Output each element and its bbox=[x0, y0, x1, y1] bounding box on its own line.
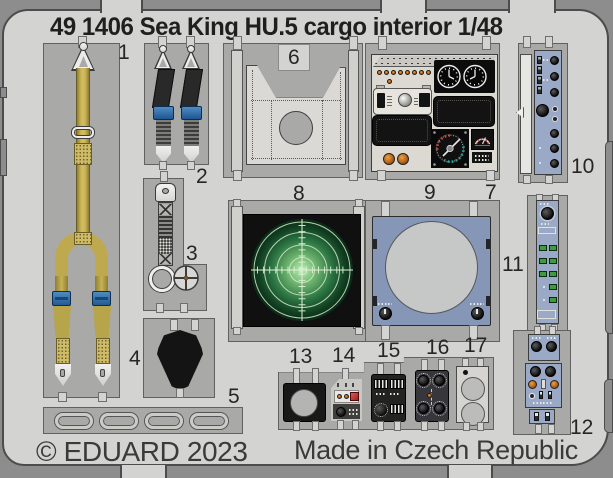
control-box bbox=[529, 409, 555, 424]
part-number-label: 11 bbox=[502, 254, 524, 275]
etch-detail bbox=[349, 36, 358, 50]
indicator-light-icon bbox=[398, 70, 403, 75]
etch-detail bbox=[394, 421, 401, 431]
etch-detail bbox=[523, 36, 531, 48]
box-knob-icon bbox=[545, 366, 556, 377]
etch-detail bbox=[540, 203, 550, 205]
etch-detail bbox=[340, 72, 341, 160]
red-button-icon bbox=[350, 392, 359, 401]
green-button-icon bbox=[549, 245, 557, 251]
console-knob-icon bbox=[550, 129, 559, 138]
etch-detail bbox=[463, 422, 470, 431]
green-button-icon bbox=[549, 258, 557, 264]
part-number-label: 7 bbox=[485, 182, 497, 203]
etch-detail bbox=[352, 383, 354, 387]
etch-detail bbox=[159, 238, 172, 254]
box-knob-icon bbox=[374, 403, 388, 417]
part-number-label: 17 bbox=[464, 335, 487, 356]
etch-detail bbox=[349, 170, 358, 181]
etch-detail bbox=[447, 145, 453, 151]
small-gauge-icon bbox=[471, 129, 494, 150]
etch-detail bbox=[486, 239, 490, 249]
part-number-label: 5 bbox=[228, 386, 240, 407]
etch-detail bbox=[252, 70, 253, 160]
etch-detail bbox=[477, 422, 484, 431]
pe-fret-photo: 49 1406 Sea King HU.5 cargo interior 1/4… bbox=[0, 0, 613, 478]
sheet-title: 49 1406 Sea King HU.5 cargo interior 1/4… bbox=[50, 13, 503, 42]
orange-knob-icon bbox=[550, 380, 559, 389]
etch-detail bbox=[233, 170, 242, 181]
etch-detail bbox=[421, 421, 428, 431]
etch-detail bbox=[95, 297, 108, 300]
etch-detail bbox=[312, 368, 319, 384]
box-knob-icon bbox=[434, 403, 445, 414]
part-number-label: 2 bbox=[196, 166, 208, 187]
etch-detail bbox=[233, 36, 242, 50]
etch-detail bbox=[545, 412, 550, 421]
indicator-light-icon bbox=[412, 70, 417, 75]
etch-detail bbox=[433, 163, 436, 166]
part-number-label: 6 bbox=[288, 47, 300, 68]
etch-detail bbox=[475, 155, 489, 157]
part-number-label: 16 bbox=[426, 337, 449, 358]
etch-detail bbox=[377, 93, 385, 108]
etch-detail bbox=[387, 95, 392, 106]
etch-detail bbox=[433, 131, 436, 134]
etch-detail bbox=[187, 161, 195, 170]
etch-detail bbox=[373, 296, 377, 306]
part-number-label: 13 bbox=[289, 346, 312, 367]
etch-detail bbox=[537, 86, 542, 94]
etch-detail bbox=[377, 421, 384, 431]
green-button-icon bbox=[539, 258, 547, 264]
engine-gauge-icon bbox=[431, 129, 469, 168]
etch-detail bbox=[176, 388, 184, 398]
orange-knob-icon bbox=[397, 153, 409, 165]
etch-detail bbox=[464, 131, 467, 134]
etch-detail bbox=[160, 171, 168, 182]
etch-detail bbox=[349, 413, 359, 415]
etch-detail bbox=[543, 59, 548, 61]
grab-handle-icon bbox=[100, 413, 138, 429]
console-knob-icon bbox=[536, 104, 549, 117]
box-knob-icon bbox=[530, 366, 541, 377]
etch-detail bbox=[545, 36, 553, 48]
etch-detail bbox=[463, 370, 468, 375]
etch-detail bbox=[233, 199, 241, 207]
etch-detail bbox=[231, 206, 243, 329]
etch-detail bbox=[156, 303, 164, 313]
etch-detail bbox=[312, 421, 319, 431]
box-knob-icon bbox=[418, 403, 429, 414]
copyright-text: © EDUARD 2023 bbox=[36, 436, 248, 468]
etch-detail bbox=[180, 303, 188, 313]
etch-detail bbox=[475, 159, 489, 161]
blank-panel bbox=[433, 96, 495, 127]
sheet-edge-tab bbox=[380, 0, 427, 13]
sheet-edge-slot bbox=[605, 141, 613, 334]
part-number-label: 8 bbox=[293, 183, 305, 204]
clock-gauge-icon bbox=[436, 62, 493, 91]
console-knob-icon bbox=[550, 159, 559, 168]
etch-detail bbox=[96, 338, 110, 364]
etch-detail bbox=[476, 309, 478, 314]
etch-detail bbox=[74, 143, 92, 165]
etch-detail bbox=[390, 393, 400, 395]
dip-switch-icon bbox=[390, 404, 404, 414]
etch-detail bbox=[231, 50, 243, 172]
buckle-icon bbox=[181, 106, 202, 120]
etch-detail bbox=[95, 276, 108, 292]
etch-detail bbox=[469, 201, 478, 217]
etch-detail bbox=[381, 325, 390, 340]
etch-detail bbox=[548, 424, 555, 434]
orange-knob-icon bbox=[528, 380, 537, 389]
etch-detail bbox=[464, 163, 467, 166]
etch-detail bbox=[419, 93, 430, 107]
etch-detail bbox=[337, 383, 339, 387]
etch-detail bbox=[523, 175, 531, 184]
etch-detail bbox=[55, 297, 68, 300]
indicator-light-icon bbox=[405, 70, 410, 75]
radar-screen-icon bbox=[249, 217, 355, 323]
etch-detail bbox=[184, 276, 188, 280]
box-knob-icon bbox=[336, 407, 346, 417]
etch-detail bbox=[348, 50, 359, 172]
sheet-edge-slot bbox=[0, 87, 7, 98]
etch-detail bbox=[534, 412, 539, 421]
green-button-icon bbox=[549, 271, 557, 277]
etch-detail bbox=[93, 306, 111, 338]
box-knob-icon bbox=[546, 341, 557, 352]
handwheel-icon bbox=[172, 264, 200, 292]
rotary-knob-icon bbox=[398, 93, 412, 107]
grab-handle-icon bbox=[190, 413, 228, 429]
etch-detail bbox=[541, 223, 549, 225]
part-number-label: 15 bbox=[377, 340, 400, 361]
etch-detail bbox=[293, 368, 300, 384]
etch-detail bbox=[552, 116, 558, 122]
etch-detail bbox=[58, 392, 67, 402]
etch-detail bbox=[55, 276, 68, 292]
etch-detail bbox=[539, 162, 541, 164]
green-button-icon bbox=[539, 271, 547, 277]
etch-detail bbox=[74, 232, 92, 245]
etch-detail bbox=[532, 337, 541, 339]
sheet-edge-slot bbox=[0, 139, 7, 176]
orange-knob-icon bbox=[383, 153, 395, 165]
etch-detail bbox=[539, 147, 541, 149]
etch-detail bbox=[233, 327, 241, 335]
sheet-edge-tab bbox=[100, 0, 143, 13]
panel-knob-icon bbox=[541, 207, 554, 220]
part-number-label: 10 bbox=[571, 156, 594, 177]
etch-detail bbox=[486, 170, 495, 181]
etch-detail bbox=[322, 100, 323, 160]
console-knob-icon bbox=[550, 88, 559, 97]
etch-detail bbox=[159, 254, 172, 264]
box-knob-icon bbox=[434, 375, 445, 386]
etch-detail bbox=[381, 201, 390, 217]
etch-detail bbox=[159, 45, 167, 53]
etch-detail bbox=[191, 319, 199, 331]
etch-detail bbox=[345, 383, 347, 387]
etch-detail bbox=[60, 369, 65, 377]
etch-detail bbox=[378, 303, 392, 305]
etch-detail bbox=[355, 327, 363, 335]
etch-detail bbox=[529, 393, 535, 399]
etch-detail bbox=[98, 392, 107, 402]
etch-detail bbox=[355, 199, 363, 207]
part-number-label: 14 bbox=[332, 345, 355, 366]
etch-detail bbox=[187, 45, 195, 53]
sheet-edge-tab bbox=[508, 0, 556, 13]
etch-detail bbox=[414, 96, 418, 105]
etch-detail bbox=[100, 369, 105, 377]
indicator-light-icon bbox=[426, 70, 431, 75]
part-number-label: 9 bbox=[424, 182, 436, 203]
etch-detail bbox=[377, 170, 386, 181]
etch-detail bbox=[537, 56, 542, 64]
indicator-light-icon bbox=[419, 70, 424, 75]
etch-detail bbox=[541, 379, 546, 389]
green-button-icon bbox=[549, 284, 557, 290]
box-knob-icon bbox=[418, 375, 429, 386]
etch-detail bbox=[539, 391, 543, 399]
etch-detail bbox=[482, 36, 491, 50]
indicator-light-icon bbox=[377, 70, 382, 75]
etch-detail bbox=[533, 402, 553, 404]
etch-detail bbox=[293, 421, 300, 431]
etch-detail bbox=[352, 420, 359, 430]
green-button-icon bbox=[539, 245, 547, 251]
etch-detail bbox=[538, 227, 556, 234]
etch-detail bbox=[545, 175, 553, 184]
console-knob-icon bbox=[550, 56, 559, 65]
etch-detail bbox=[470, 303, 484, 305]
etch-detail bbox=[376, 393, 386, 395]
dip-switch-icon bbox=[374, 379, 388, 389]
lightening-hole bbox=[279, 111, 313, 145]
etch-detail bbox=[251, 100, 342, 101]
etch-detail bbox=[56, 338, 70, 364]
etch-detail bbox=[337, 420, 344, 430]
etch-detail bbox=[184, 120, 199, 146]
box-knob-icon bbox=[531, 341, 542, 352]
indicator-light-icon bbox=[384, 70, 389, 75]
etch-detail bbox=[79, 42, 88, 51]
console-knob-icon bbox=[550, 144, 559, 153]
etch-detail bbox=[486, 296, 490, 306]
orange-light-icon bbox=[427, 393, 432, 398]
green-button-icon bbox=[549, 297, 557, 303]
etch-detail bbox=[552, 106, 558, 112]
etch-detail bbox=[438, 421, 445, 431]
etch-detail bbox=[537, 66, 542, 74]
orange-light-icon bbox=[337, 394, 342, 399]
etch-detail bbox=[162, 188, 169, 194]
etch-detail bbox=[376, 119, 428, 142]
part-number-label: 1 bbox=[118, 42, 130, 63]
etch-detail bbox=[537, 76, 542, 84]
indicator-light-icon bbox=[387, 79, 392, 84]
strap-slider-icon bbox=[72, 127, 94, 138]
etch-detail bbox=[251, 158, 342, 159]
dial-opening bbox=[461, 377, 485, 401]
etch-detail bbox=[384, 309, 386, 314]
sheet-edge-slot bbox=[604, 379, 613, 433]
etch-detail bbox=[271, 100, 272, 160]
etch-detail bbox=[543, 79, 548, 81]
part-number-label: 4 bbox=[129, 348, 141, 369]
made-in-text: Made in Czech Republic bbox=[294, 435, 578, 466]
etch-detail bbox=[159, 216, 172, 238]
etch-detail bbox=[437, 100, 491, 123]
part-number-label: 3 bbox=[186, 243, 198, 264]
dip-switch-icon bbox=[390, 379, 404, 389]
buckle-icon bbox=[153, 106, 174, 120]
orange-light-icon bbox=[344, 394, 349, 399]
etch-detail bbox=[543, 299, 545, 301]
etch-detail bbox=[156, 120, 171, 146]
console-knob-icon bbox=[550, 72, 559, 81]
etch-detail bbox=[159, 204, 172, 215]
etch-detail bbox=[537, 310, 556, 319]
etch-detail bbox=[159, 161, 167, 170]
indicator-light-icon bbox=[391, 70, 396, 75]
sheet-edge-tab bbox=[447, 465, 493, 478]
etch-detail bbox=[547, 337, 556, 339]
etch-detail bbox=[170, 319, 178, 331]
grab-handle-icon bbox=[55, 413, 93, 429]
etch-detail bbox=[472, 152, 492, 163]
etch-detail bbox=[373, 239, 377, 249]
etch-detail bbox=[535, 424, 542, 434]
blank-panel bbox=[372, 115, 432, 146]
grab-handle-icon bbox=[145, 413, 183, 429]
scope-opening bbox=[385, 221, 478, 314]
plate-hole bbox=[290, 389, 318, 417]
etch-detail bbox=[53, 306, 71, 338]
etch-detail bbox=[378, 36, 387, 50]
etch-detail bbox=[543, 286, 545, 288]
etch-detail bbox=[349, 409, 359, 411]
etch-detail bbox=[548, 391, 552, 399]
